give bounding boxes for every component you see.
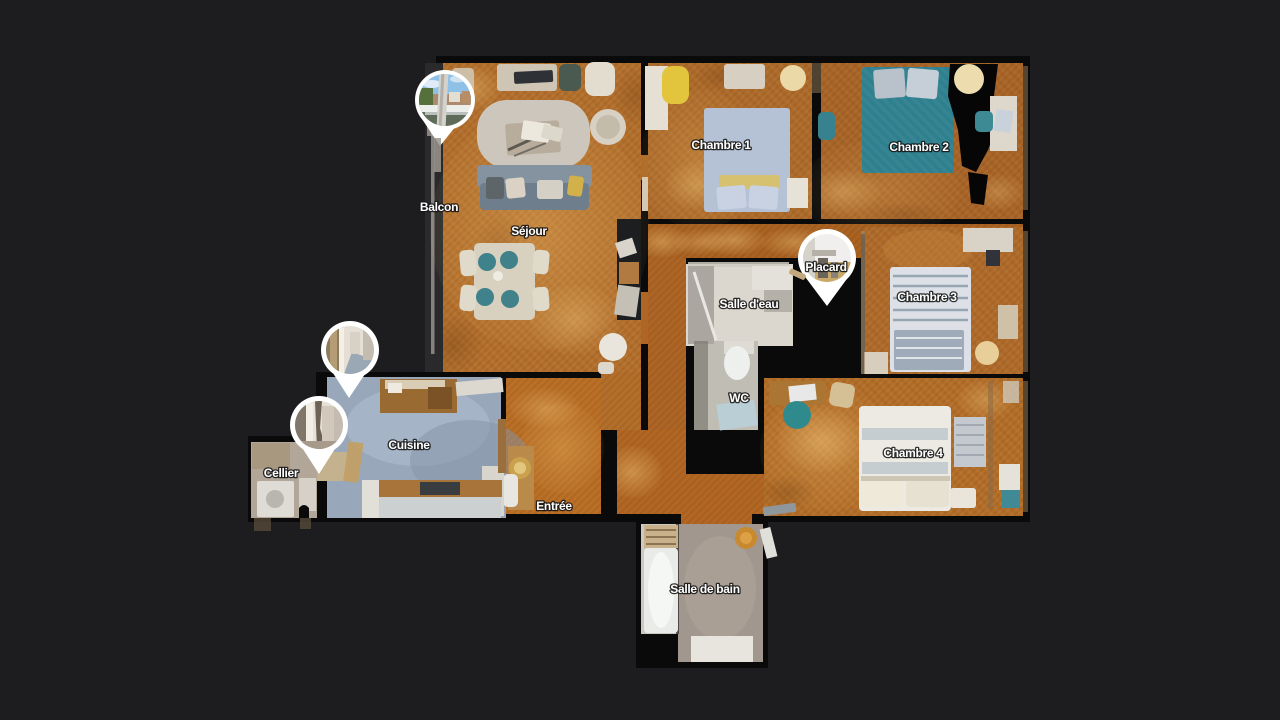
svg-text:WC: WC — [729, 391, 749, 405]
svg-text:Salle d'eau: Salle d'eau — [720, 297, 779, 311]
svg-text:Chambre 4: Chambre 4 — [883, 446, 943, 460]
svg-text:Cellier: Cellier — [264, 466, 299, 480]
svg-text:Salle de bain: Salle de bain — [670, 582, 739, 596]
svg-text:Cuisine: Cuisine — [388, 438, 430, 452]
svg-text:Balcon: Balcon — [420, 200, 458, 214]
svg-text:Chambre 3: Chambre 3 — [897, 290, 957, 304]
svg-text:Entrée: Entrée — [536, 499, 572, 513]
svg-text:Placard: Placard — [805, 260, 846, 274]
svg-text:Chambre 2: Chambre 2 — [889, 140, 949, 154]
svg-text:Séjour: Séjour — [511, 224, 547, 238]
svg-text:Chambre 1: Chambre 1 — [691, 138, 751, 152]
